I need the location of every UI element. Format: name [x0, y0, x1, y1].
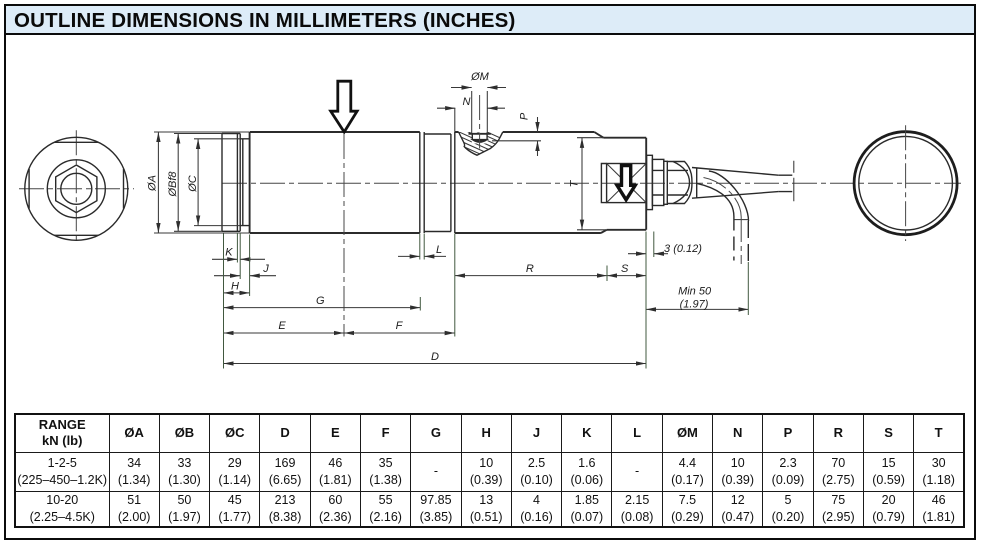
- svg-text:3 (0.12): 3 (0.12): [664, 243, 702, 255]
- svg-text:ØA: ØA: [147, 175, 159, 192]
- svg-text:K: K: [225, 247, 233, 259]
- svg-text:J: J: [262, 263, 269, 275]
- svg-text:G: G: [316, 295, 325, 307]
- svg-text:E: E: [278, 320, 286, 332]
- svg-text:D: D: [431, 351, 439, 363]
- svg-text:ØBf8: ØBf8: [167, 171, 179, 198]
- svg-text:N: N: [463, 96, 471, 108]
- svg-text:ØC: ØC: [187, 175, 199, 193]
- svg-text:H: H: [231, 280, 239, 292]
- svg-text:F: F: [396, 320, 404, 332]
- svg-text:P: P: [519, 112, 531, 120]
- svg-text:(1.97): (1.97): [680, 298, 709, 310]
- svg-text:R: R: [526, 263, 534, 275]
- svg-text:ØM: ØM: [470, 71, 490, 83]
- svg-text:Min 50: Min 50: [678, 286, 712, 298]
- svg-text:L: L: [436, 244, 442, 256]
- svg-text:S: S: [621, 263, 629, 275]
- svg-text:T: T: [569, 179, 581, 187]
